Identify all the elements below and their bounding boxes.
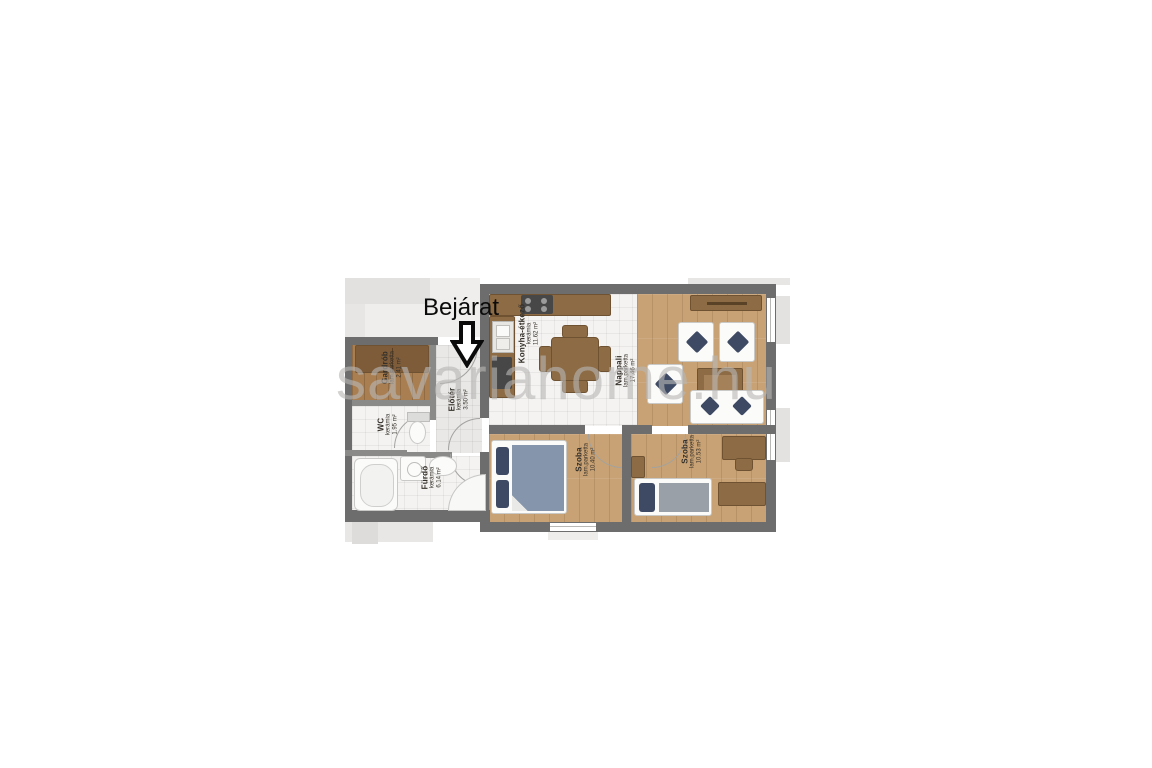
- window-bottom-bedroom1: [550, 523, 596, 531]
- wall-eloter-left: [430, 345, 436, 420]
- dining-chair-top: [562, 325, 588, 338]
- window-glass-line: [550, 526, 596, 527]
- dresser: [718, 482, 766, 506]
- single-bed-blanket: [659, 483, 709, 512]
- bathtub: [354, 458, 398, 511]
- wall-bedrooms-c: [688, 425, 776, 434]
- washing-machine-drum: [407, 462, 422, 477]
- burner: [541, 298, 547, 304]
- armchair-1: [678, 322, 714, 362]
- wardrobe: [355, 345, 429, 373]
- small-cabinet: [631, 456, 645, 478]
- bed-pillow: [496, 447, 509, 475]
- wall-bedrooms-b: [622, 425, 652, 434]
- armchair-2: [719, 322, 755, 362]
- bed-blanket: [512, 445, 564, 511]
- desk-chair: [735, 458, 753, 471]
- wall-gardrob-wc: [352, 400, 435, 406]
- bathroom-sink: [429, 456, 457, 476]
- window-glass-line: [770, 410, 771, 460]
- fridge: [492, 357, 512, 389]
- entrance-arrow-icon: [450, 320, 484, 368]
- armchair-pillow: [727, 331, 750, 354]
- window-sill-bottom: [548, 532, 598, 540]
- double-bed: [491, 440, 567, 514]
- burner: [541, 306, 547, 312]
- single-bed: [634, 478, 712, 516]
- window-right-bedroom2: [767, 410, 775, 460]
- kitchen-sink-drainer: [496, 338, 510, 350]
- toilet-bowl: [409, 421, 426, 444]
- kitchen-sink: [492, 321, 514, 353]
- desk: [722, 436, 766, 460]
- washing-machine: [400, 456, 426, 481]
- wall-leftblock-bottom: [345, 510, 490, 522]
- window-right-living: [767, 298, 775, 342]
- burner: [525, 306, 531, 312]
- window-sill-right-top: [776, 296, 790, 344]
- wall-wc-bath: [345, 450, 407, 456]
- wall-leftblock-top: [345, 337, 440, 345]
- neighbor-area-top-left-block: [345, 278, 430, 304]
- dining-chair-right: [598, 346, 611, 372]
- dining-chair-left: [539, 346, 552, 372]
- dining-chair-bottom: [562, 380, 588, 393]
- armchair-3: [647, 364, 683, 404]
- bed-pillow: [639, 483, 655, 512]
- wall-leftblock-left: [345, 337, 352, 522]
- bed-pillow: [496, 480, 509, 508]
- window-sill-right-bottom: [776, 408, 790, 462]
- wall-bottom-main: [480, 522, 776, 532]
- neighbor-area-top-left-strip: [345, 304, 365, 338]
- sideboard: [690, 295, 762, 311]
- neighbor-area-bottom-left-block: [352, 522, 378, 544]
- burner: [525, 298, 531, 304]
- wall-top-main: [480, 284, 776, 294]
- kitchen-sink-bowl: [496, 325, 510, 337]
- sofa-pillow: [700, 396, 720, 416]
- armchair-pillow: [686, 331, 709, 354]
- wall-bedrooms-a: [489, 425, 585, 434]
- bathtub-basin: [360, 464, 394, 507]
- entrance-label: Bejárat: [423, 294, 499, 322]
- sideboard-handle: [707, 302, 747, 305]
- wall-bedroom-divider: [622, 434, 631, 522]
- window-glass-line: [770, 298, 771, 342]
- wardrobe-door-line: [392, 348, 393, 372]
- sofa-pillow: [732, 396, 752, 416]
- sofa: [690, 390, 764, 424]
- stove: [521, 295, 553, 314]
- dining-table: [551, 337, 599, 381]
- floorplan: Gardrób lam.parketta 2.41 m² WC kerámia …: [0, 0, 1152, 768]
- armchair-pillow: [655, 373, 678, 396]
